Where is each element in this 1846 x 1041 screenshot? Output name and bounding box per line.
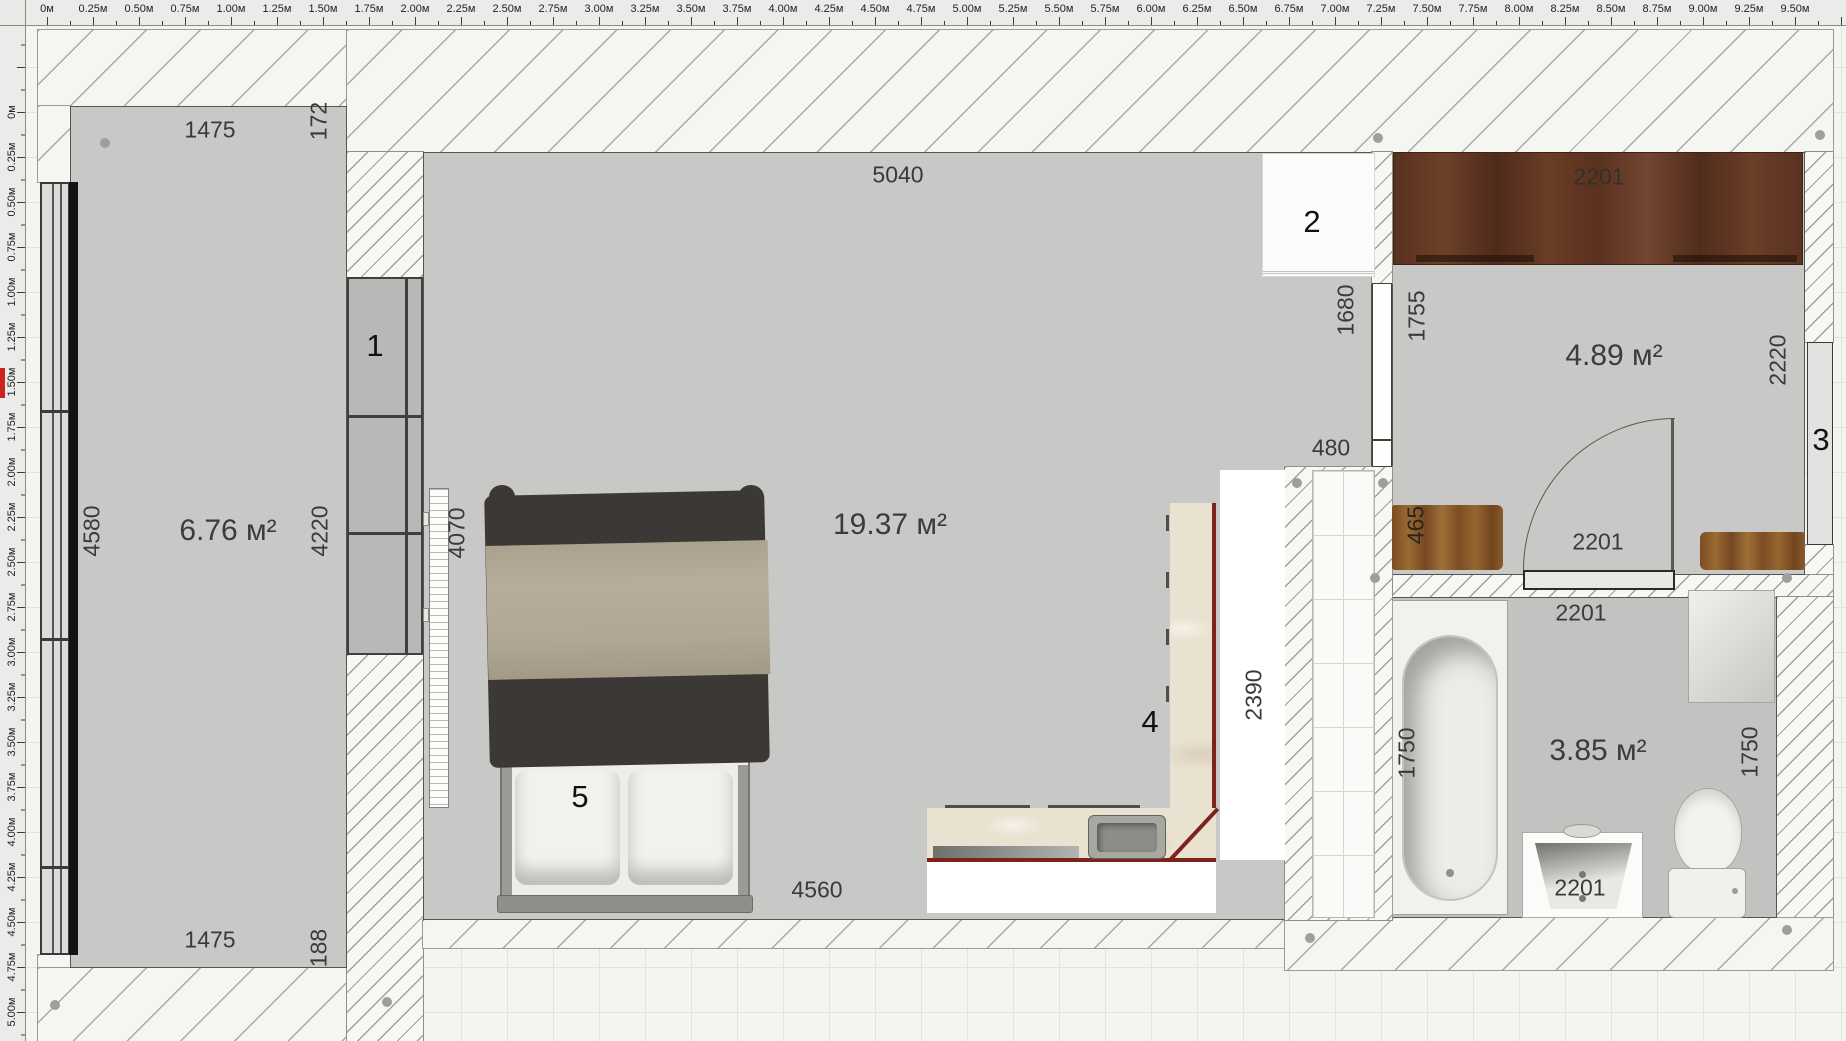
ruler-corner [0, 0, 26, 26]
window-divider [42, 866, 68, 869]
ruler-tick-label: 7.00м [1321, 3, 1350, 15]
kitchen-sink[interactable] [1088, 815, 1166, 859]
wall-partition-wardrobe-top [347, 152, 423, 277]
wall-right-mid [1805, 545, 1833, 575]
bath-faucet [1563, 824, 1601, 838]
kitchen-handle [1166, 515, 1169, 531]
door-living-hall[interactable] [1372, 283, 1392, 467]
bed-duvet-band [486, 540, 771, 680]
ruler-tick-label: 8.75м [1643, 3, 1672, 15]
ruler-tick-label: 2.00м [6, 458, 18, 487]
joint-dot [1292, 478, 1302, 488]
door-jamb [1373, 439, 1391, 441]
joint-dot [1782, 925, 1792, 935]
dim-door-opening: 1680 [1333, 284, 1360, 335]
dim-hall-left: 1755 [1404, 290, 1431, 341]
ruler-tick-label: 3.75м [6, 773, 18, 802]
toilet[interactable] [1668, 788, 1746, 918]
ruler-tick-label: 1.25м [6, 323, 18, 352]
ruler-tick-label: 4.50м [6, 908, 18, 937]
window-balcony-sill [69, 182, 78, 955]
wardrobe-divider [405, 279, 408, 653]
bed[interactable] [487, 483, 769, 915]
ruler-tick-label: 7.50м [1413, 3, 1442, 15]
ruler-tick-label: 8.00м [1505, 3, 1534, 15]
ruler-tick-label: 3.00м [585, 3, 614, 15]
ruler-tick-label: 3.25м [631, 3, 660, 15]
ruler-tick-label: 4.00м [769, 3, 798, 15]
ruler-vertical[interactable]: 0м0.25м0.50м0.75м1.00м1.25м1.50м1.75м2.0… [0, 26, 26, 1041]
ruler-tick-label: 2.25м [447, 3, 476, 15]
ruler-tick-label: 1.25м [263, 3, 292, 15]
ruler-tick-label: 2.50м [6, 548, 18, 577]
kitchen-hob[interactable] [933, 846, 1079, 858]
area-bathroom: 3.85 м² [1549, 734, 1646, 768]
marker-window[interactable]: 3 [1812, 422, 1829, 458]
ruler-tick-label: 5.00м [6, 998, 18, 1027]
marker-kitchen[interactable]: 4 [1141, 704, 1158, 740]
dim-living-bottom: 4560 [791, 877, 842, 904]
ruler-tick-label: 8.25м [1551, 3, 1580, 15]
wardrobe-cabinet[interactable] [347, 277, 423, 655]
joint-dot [100, 138, 110, 148]
joint-dot [382, 997, 392, 1007]
kitchen-handle [1166, 572, 1169, 588]
ruler-tick-label: 4.75м [907, 3, 936, 15]
ruler-tick-label: 7.75м [1459, 3, 1488, 15]
duct-tiles [1312, 470, 1375, 918]
ruler-tick-label: 4.25м [6, 863, 18, 892]
joint-dot [1305, 933, 1315, 943]
wall-top-main [347, 30, 1833, 152]
ruler-tick-label: 3.75м [723, 3, 752, 15]
ruler-tick-label: 6.25м [1183, 3, 1212, 15]
wall-partition-wardrobe-bottom [347, 655, 423, 1041]
kitchen-handle [945, 805, 1030, 808]
dim-niche: 480 [1312, 435, 1350, 462]
ruler-cursor [0, 368, 5, 398]
area-balcony: 6.76 м² [179, 514, 276, 548]
kitchen-handle [1166, 686, 1169, 702]
fridge-edge [1263, 271, 1374, 274]
dim-bathtub: 1750 [1394, 727, 1421, 778]
wall-left-upper [38, 106, 70, 182]
bathtub-drain [1446, 869, 1454, 877]
bed-rail-right [738, 765, 748, 909]
ruler-tick-label: 3.50м [6, 728, 18, 757]
wall-top-left [38, 30, 347, 106]
kitchen-gap [1220, 470, 1285, 860]
ruler-tick-label: 4.50м [861, 3, 890, 15]
ruler-tick-label: 8.50м [1597, 3, 1626, 15]
dim-bench: 465 [1403, 506, 1430, 544]
ruler-tick-label: 4.00м [6, 818, 18, 847]
ruler-tick-label: 1.75м [6, 413, 18, 442]
dim-bath-door: 2201 [1555, 600, 1606, 627]
ruler-tick-label: 1.75м [355, 3, 384, 15]
hall-wardrobe-plinth [1673, 255, 1797, 262]
ruler-tick-label: 0м [6, 105, 18, 119]
hall-wardrobe-plinth [1416, 255, 1534, 262]
kitchen-handle [1166, 629, 1169, 645]
door-bath-leaf-open [1671, 418, 1674, 570]
ruler-tick-label: 0.25м [79, 3, 108, 15]
wall-right-upper [1805, 152, 1833, 342]
ruler-tick-label: 7.25м [1367, 3, 1396, 15]
area-living: 19.37 м² [833, 508, 947, 542]
area-hallway: 4.89 м² [1565, 339, 1662, 373]
floor-plan-canvas[interactable]: 1475 172 4580 4220 1475 188 5040 4070 45… [0, 0, 1846, 1041]
joint-dot [1815, 130, 1825, 140]
ruler-tick-label: 5.75м [1091, 3, 1120, 15]
dim-radiator: 4070 [444, 507, 471, 558]
ruler-tick-label: 2.75м [6, 593, 18, 622]
dim-balcony-top-side: 172 [306, 102, 333, 140]
ruler-tick-label: 2.75м [539, 3, 568, 15]
dim-hall-door: 2201 [1572, 529, 1623, 556]
ruler-tick-label: 5.00м [953, 3, 982, 15]
toilet-seat [1674, 788, 1742, 874]
joint-dot [1378, 478, 1388, 488]
kitchen-handle [1048, 805, 1140, 808]
kitchen-sink-basin [1097, 823, 1157, 852]
wall-door-column [1372, 152, 1392, 283]
ruler-tick-label: 6.00м [1137, 3, 1166, 15]
dim-living-top: 5040 [872, 162, 923, 189]
hall-stool[interactable] [1700, 532, 1805, 570]
dim-balcony-inner: 4220 [307, 505, 334, 556]
ruler-tick-label: 0м [40, 3, 54, 15]
window-divider [42, 410, 68, 413]
ruler-tick-label: 2.00м [401, 3, 430, 15]
wall-bottom-bath [1285, 918, 1833, 970]
ruler-tick-label: 0.25м [6, 143, 18, 172]
ruler-tick-label: 9.25м [1735, 3, 1764, 15]
ruler-tick-label: 0.75м [6, 233, 18, 262]
ruler-tick-label: 5.25м [999, 3, 1028, 15]
window-balcony[interactable] [40, 182, 70, 955]
kitchen-cabinet-base [927, 862, 1216, 913]
ruler-tick-label: 1.00м [217, 3, 246, 15]
ruler-tick-label: 1.50м [6, 368, 18, 397]
ruler-tick-label: 9.50м [1781, 3, 1810, 15]
ruler-tick-label: 0.50м [6, 188, 18, 217]
wall-bottom-living [423, 920, 1290, 948]
window-divider [42, 638, 68, 641]
ruler-tick-label: 1.50м [309, 3, 338, 15]
shower-panel[interactable] [1688, 590, 1775, 703]
ruler-horizontal[interactable]: 0м0.25м0.50м0.75м1.00м1.25м1.50м1.75м2.0… [26, 0, 1846, 26]
wall-bath-right [1777, 597, 1833, 918]
ruler-tick-label: 3.00м [6, 638, 18, 667]
ruler-tick-label: 0.75м [171, 3, 200, 15]
bed-footboard [497, 895, 753, 913]
radiator-bracket [423, 608, 429, 622]
ruler-tick-label: 1.00м [6, 278, 18, 307]
bed-rail-left [502, 765, 512, 909]
door-bath-leaf[interactable] [1523, 570, 1675, 590]
ruler-tick-label: 4.75м [6, 953, 18, 982]
marker-bed[interactable]: 5 [571, 779, 588, 815]
dim-bath-side: 1750 [1737, 726, 1764, 777]
joint-dot [1370, 573, 1380, 583]
joint-dot [1782, 573, 1792, 583]
ruler-tick-label: 5.50м [1045, 3, 1074, 15]
dim-balcony-bottom: 1475 [184, 927, 235, 954]
bed-pillow [515, 770, 620, 885]
dim-kitchen-counter: 2390 [1241, 669, 1268, 720]
toilet-flush [1732, 888, 1738, 894]
ruler-tick-label: 2.25м [6, 503, 18, 532]
dim-balcony-window: 4580 [79, 505, 106, 556]
dim-hall-wardrobe: 2201 [1573, 164, 1624, 191]
marker-fridge[interactable]: 2 [1303, 204, 1320, 240]
dim-sink: 2201 [1554, 875, 1605, 902]
ruler-tick-label: 6.50м [1229, 3, 1258, 15]
wardrobe-divider [349, 415, 421, 418]
bed-pillow [628, 770, 733, 885]
ruler-tick-label: 4.25м [815, 3, 844, 15]
dim-balcony-bottom-side: 188 [306, 929, 333, 967]
wardrobe-divider [349, 532, 421, 535]
ruler-tick-label: 3.25м [6, 683, 18, 712]
ruler-tick-label: 0.50м [125, 3, 154, 15]
ruler-tick-label: 6.75м [1275, 3, 1304, 15]
ruler-tick-label: 3.50м [677, 3, 706, 15]
radiator-bracket [423, 512, 429, 526]
joint-dot [50, 1000, 60, 1010]
ruler-tick-label: 9.00м [1689, 3, 1718, 15]
joint-dot [1373, 133, 1383, 143]
marker-wardrobe[interactable]: 1 [366, 328, 383, 364]
dim-hall-window: 2220 [1765, 334, 1792, 385]
dim-balcony-top: 1475 [184, 117, 235, 144]
ruler-tick-label: 2.50м [493, 3, 522, 15]
